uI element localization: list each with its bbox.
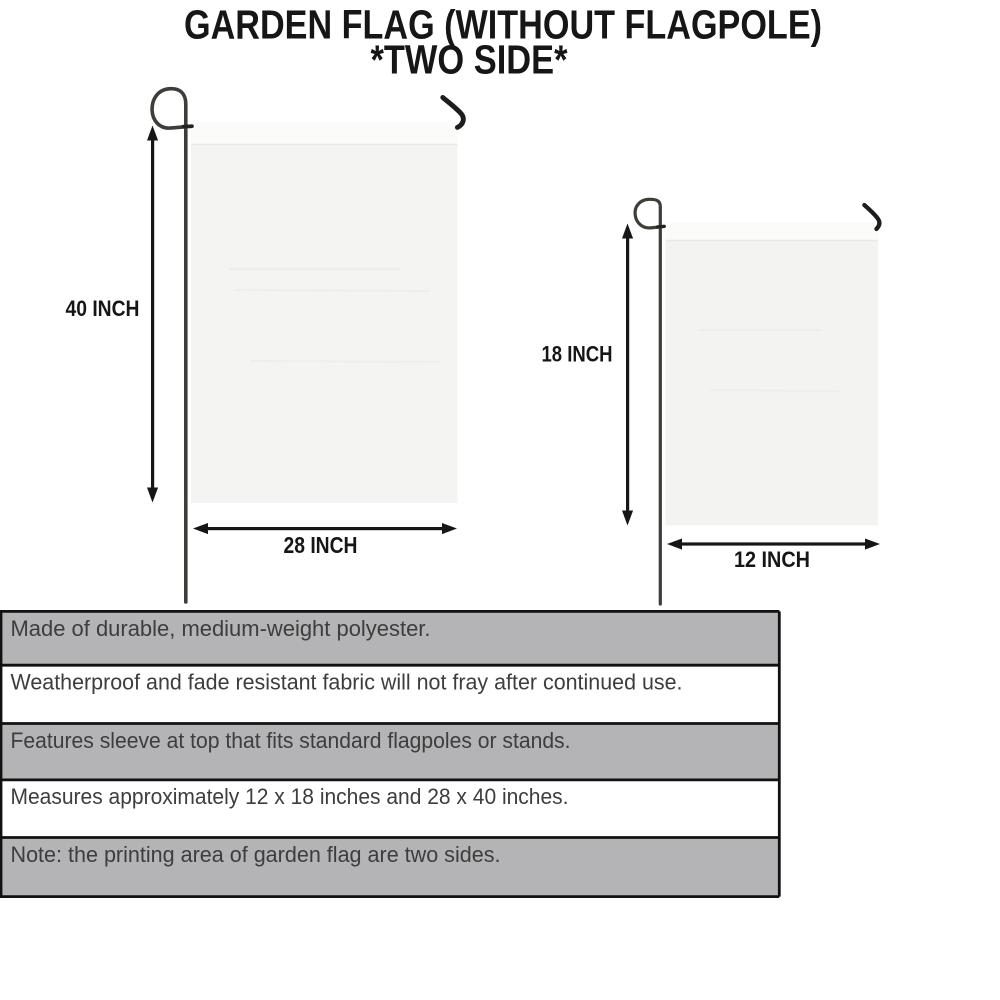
- svg-text:40 INCH: 40 INCH: [66, 296, 140, 321]
- svg-text:12 INCH: 12 INCH: [734, 547, 810, 572]
- svg-text:*TWO SIDE*: *TWO SIDE*: [371, 37, 568, 83]
- svg-text:Note: the printing area of gar: Note: the printing area of garden flag a…: [11, 842, 501, 867]
- svg-text:28 INCH: 28 INCH: [284, 532, 358, 558]
- svg-text:Made of durable, medium-weight: Made of durable, medium-weight polyester…: [11, 616, 431, 641]
- svg-text:Weatherproof and fade resistan: Weatherproof and fade resistant fabric w…: [11, 670, 683, 695]
- svg-text:Measures approximately 12 x 18: Measures approximately 12 x 18 inches an…: [11, 784, 569, 809]
- svg-text:Features sleeve at top that fi: Features sleeve at top that fits standar…: [11, 728, 571, 753]
- svg-text:18 INCH: 18 INCH: [542, 342, 613, 367]
